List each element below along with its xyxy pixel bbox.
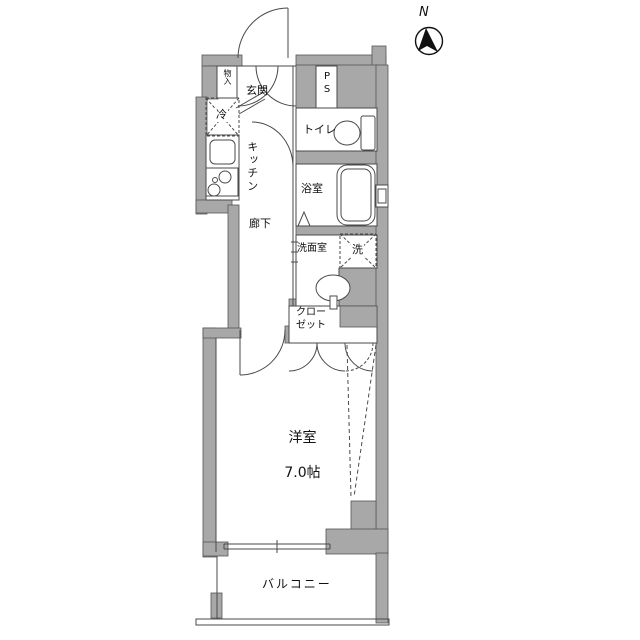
main-room-label: 洋室 7.0帖 <box>260 412 345 500</box>
north-label: N <box>419 5 429 21</box>
compass-needle-icon <box>418 28 438 52</box>
wall-left-upper <box>196 97 207 214</box>
closet-door-arc-3 <box>345 343 373 371</box>
entrance-step-line-2 <box>239 99 265 114</box>
entrance-door-arc <box>238 8 288 58</box>
toilet-label: トイレ <box>303 123 336 137</box>
bathroom-label: 浴室 <box>301 182 323 196</box>
wall-top-left <box>202 55 242 66</box>
door-swing-dashed-1 <box>347 345 351 497</box>
wall-right-spine <box>376 65 388 555</box>
wall-left-step <box>196 200 232 213</box>
bath-window-inner <box>378 189 386 203</box>
floorplan-page: N 物入 玄関 PS トイレ 冷 キッチン 浴室 廊下 洗面室 洗 クロー ゼッ… <box>0 0 640 640</box>
entrance-label: 玄関 <box>246 84 268 98</box>
washroom-label: 洗面室 <box>297 243 327 256</box>
wall-step-lower <box>326 529 388 554</box>
pipe-space-label: PS <box>320 71 333 97</box>
washer-label: 洗 <box>351 243 364 257</box>
refrigerator-label: 冷 <box>215 108 228 122</box>
closet-label: クロー ゼット <box>296 307 326 332</box>
storage-label: 物入 <box>222 69 232 85</box>
balcony-railing <box>196 619 389 625</box>
closet-door-arc-2 <box>317 343 345 371</box>
wall-storage-left <box>202 66 218 99</box>
toilet-bowl-icon <box>334 121 360 145</box>
wall-step-upper <box>351 501 376 530</box>
wall-top-right-cap <box>372 46 386 66</box>
balcony-label: バルコニー <box>262 577 332 592</box>
main-room-name: 洋室 <box>260 430 345 448</box>
bathtub-inner-icon <box>341 169 371 221</box>
toilet-tank-icon <box>361 116 375 150</box>
kitchen-label: キッチン <box>245 141 259 193</box>
wall-room-top-left <box>203 328 241 338</box>
wall-closet-pillar <box>340 306 377 327</box>
basin-stem-icon <box>330 296 337 309</box>
wall-corridor-left <box>228 205 239 333</box>
kitchen-sink-icon <box>210 140 235 164</box>
closet-door-arc-1 <box>289 343 317 371</box>
compass <box>416 28 443 55</box>
room-door-arc <box>240 330 285 375</box>
hallway-label: 廊下 <box>249 217 271 231</box>
main-room-size: 7.0帖 <box>260 465 345 483</box>
wall-room-left <box>203 328 216 557</box>
wall-balcony-right <box>376 553 388 623</box>
